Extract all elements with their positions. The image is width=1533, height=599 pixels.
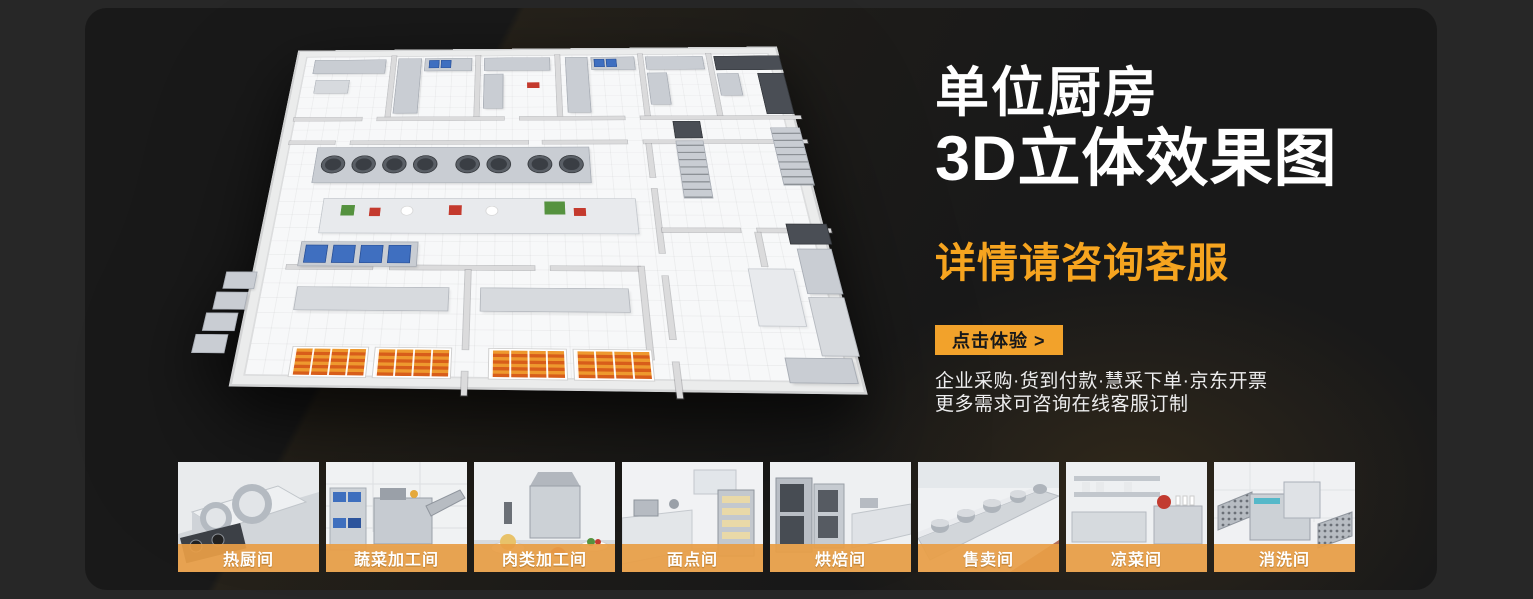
cta-button[interactable]: 点击体验 > [935, 325, 1063, 355]
kitchen-3d-floorplan [225, 20, 890, 445]
thumbnail-cold-dish-room[interactable]: 凉菜间 [1066, 462, 1207, 572]
thumbnail-serving-room[interactable]: 售卖间 [918, 462, 1059, 572]
thumbnail-label: 烘焙间 [770, 544, 911, 572]
thumbnail-label: 热厨间 [178, 544, 319, 572]
thumbnail-label: 凉菜间 [1066, 544, 1207, 572]
thumbnail-label: 消洗间 [1214, 544, 1355, 572]
thumbnail-label: 售卖间 [918, 544, 1059, 572]
room-thumbnail-strip: 热厨间 蔬菜加工间 肉 [178, 462, 1355, 572]
thumbnail-label: 面点间 [622, 544, 763, 572]
hero-subtitle: 详情请咨询客服 [935, 241, 1338, 285]
thumbnail-vegetable-processing[interactable]: 蔬菜加工间 [326, 462, 467, 572]
thumbnail-label: 蔬菜加工间 [326, 544, 467, 572]
note-line1: 企业采购·货到付款·慧采下单·京东开票 [935, 371, 1267, 392]
thumbnail-meat-processing[interactable]: 肉类加工间 [474, 462, 615, 572]
note-line2: 更多需求可咨询在线客服订制 [935, 394, 1189, 415]
thumbnail-pastry-room[interactable]: 面点间 [622, 462, 763, 572]
title-line2: 3D立体效果图 [935, 124, 1338, 194]
service-notes: 企业采购·货到付款·慧采下单·京东开票 更多需求可咨询在线客服订制 [935, 370, 1338, 416]
thumbnail-washing-room[interactable]: 消洗间 [1214, 462, 1355, 572]
title-line1: 单位厨房 [935, 63, 1159, 123]
thumbnail-hot-kitchen[interactable]: 热厨间 [178, 462, 319, 572]
floorplan-render [232, 48, 864, 392]
thumbnail-baking-room[interactable]: 烘焙间 [770, 462, 911, 572]
thumbnail-label: 肉类加工间 [474, 544, 615, 572]
page-title: 单位厨房 3D立体效果图 [935, 60, 1338, 195]
hero-text-block: 单位厨房 3D立体效果图 详情请咨询客服 点击体验 > 企业采购·货到付款·慧采… [935, 60, 1338, 416]
